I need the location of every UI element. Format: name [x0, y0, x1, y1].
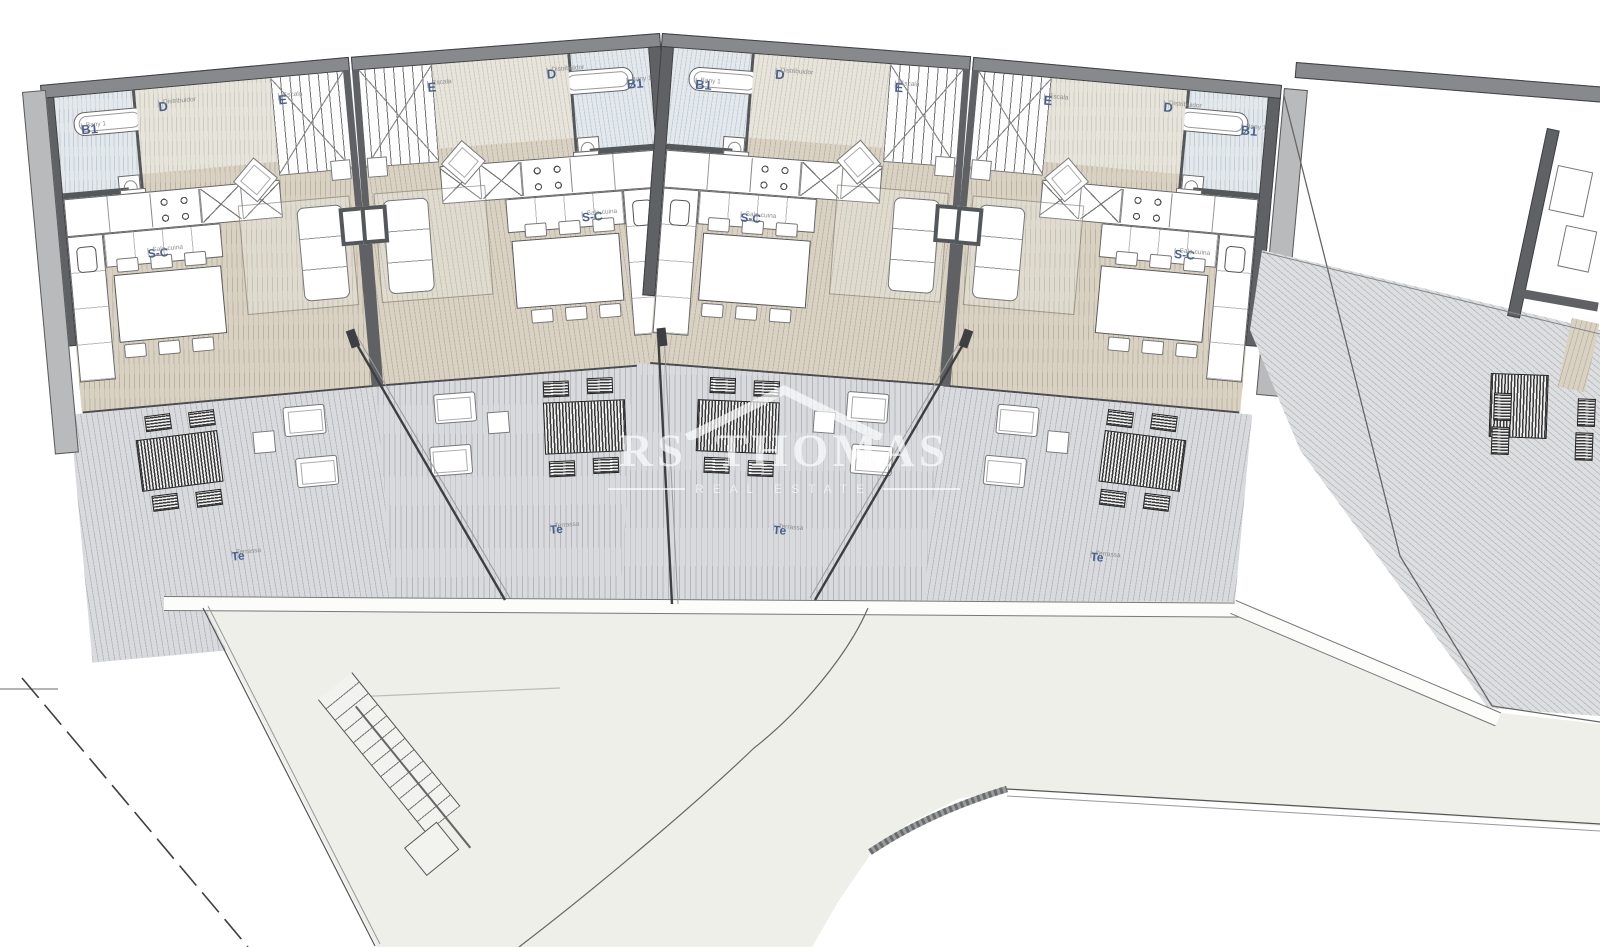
watermark-tagline-row: REAL ESTATE — [608, 482, 960, 496]
watermark-brand: RS THOMAS — [608, 424, 960, 478]
watermark-tagline: REAL ESTATE — [695, 482, 873, 496]
watermark: RS THOMAS REAL ESTATE — [608, 382, 960, 496]
floor-plan-canvas: { "plan": { "type": "residential-floor-p… — [0, 0, 1600, 947]
tagline-rule-left — [608, 488, 685, 490]
tagline-rule-right — [883, 488, 960, 490]
